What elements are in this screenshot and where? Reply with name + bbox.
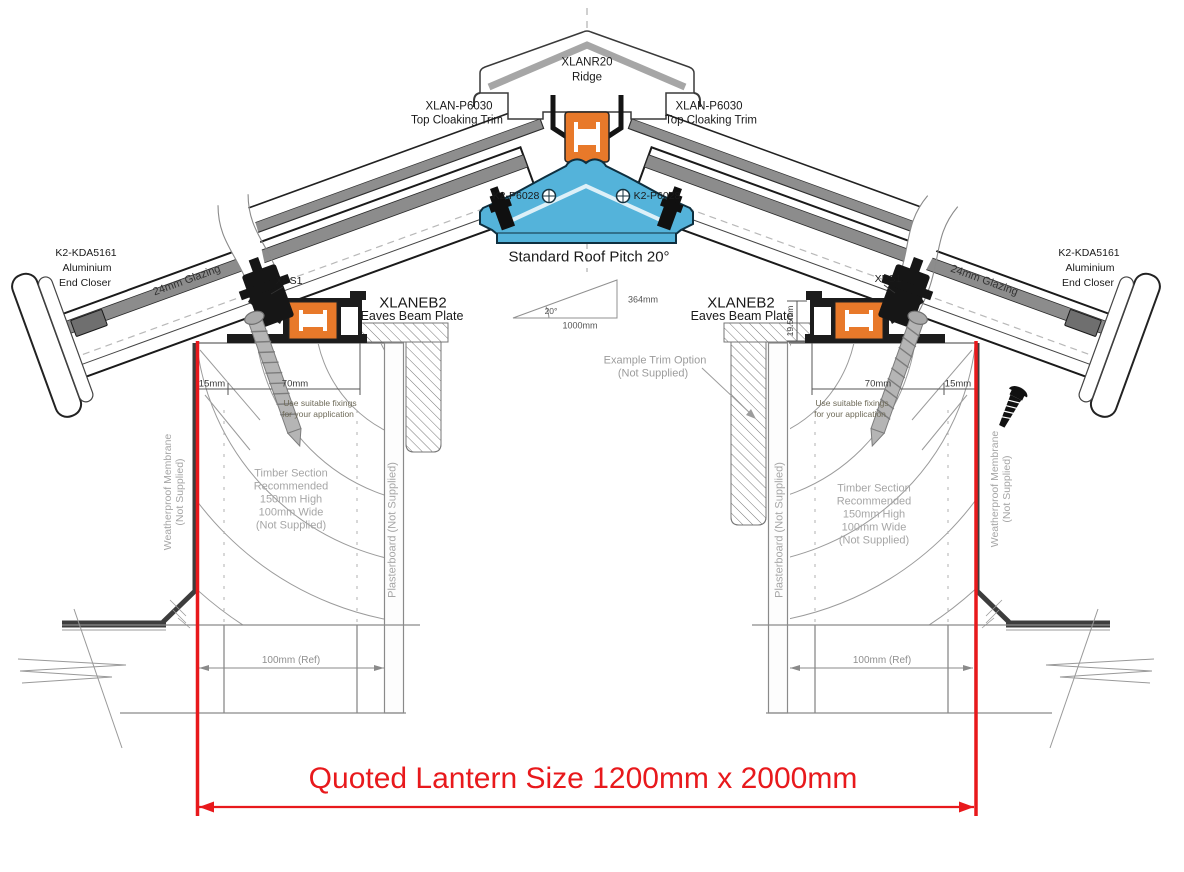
timber-note-right-1: Timber Section xyxy=(837,484,911,495)
fixings-note-left-1: Use suitable fixings xyxy=(283,399,356,408)
gasket-left-label: XPS1 xyxy=(276,276,303,287)
timber-note-left-1: Timber Section xyxy=(254,469,328,480)
membrane-right-label-1: Weatherproof Membrane xyxy=(990,431,1001,548)
dim-beam-height: 19.5mm xyxy=(786,306,795,337)
end-closer-left-code: K2-KDA5161 xyxy=(55,248,116,259)
ridge-part-code: XLANR20 xyxy=(561,57,612,69)
roof-pitch-label: Standard Roof Pitch 20° xyxy=(508,250,669,265)
timber-note-right-4: 100mm Wide xyxy=(842,523,907,534)
pitch-triangle xyxy=(513,280,617,318)
pitch-angle-label: 20° xyxy=(545,307,558,316)
break-lines xyxy=(18,609,1154,748)
ridge-part-label: Ridge xyxy=(572,72,602,84)
ridge-bolt-right xyxy=(617,190,630,203)
end-closer-left-l2: Aluminium xyxy=(62,263,111,274)
dim-70-left: 70mm xyxy=(282,379,308,389)
cloaking-trim-right-code: XLAN-P6030 xyxy=(675,101,742,113)
end-closer-right-code: K2-KDA5161 xyxy=(1058,248,1119,259)
ridge-bolt-left xyxy=(543,190,556,203)
leader-lines xyxy=(271,285,895,419)
end-closer-left-l3: End Closer xyxy=(59,278,111,289)
lantern-section-drawing: XLANR20 Ridge XLAN-P6030 Top Cloaking Tr… xyxy=(0,0,1184,872)
dim-70-right: 70mm xyxy=(865,379,891,389)
timber-note-left-2: Recommended xyxy=(254,482,329,493)
ridge-thermal-break xyxy=(565,112,609,162)
ridge-bolt-left-label: K2-P6028 xyxy=(493,191,540,202)
timber-note-right-5: (Not Supplied) xyxy=(839,536,909,547)
timber-note-left-3: 150mm High xyxy=(260,495,322,506)
timber-note-left-5: (Not Supplied) xyxy=(256,521,326,532)
plasterboard-right-label: Plasterboard (Not Supplied) xyxy=(775,462,786,598)
fixings-note-right-1: Use suitable fixings xyxy=(815,399,888,408)
eaves-beam-left-label: Eaves Beam Plate xyxy=(361,310,464,323)
cloaking-trim-right-label: Top Cloaking Trim xyxy=(665,115,757,127)
timber-note-left-4: 100mm Wide xyxy=(259,508,324,519)
dim-ref-right: 100mm (Ref) xyxy=(853,656,911,666)
membrane-left-label-1: Weatherproof Membrane xyxy=(163,434,174,551)
timber-note-right-2: Recommended xyxy=(837,497,912,508)
drawing-canvas xyxy=(0,0,1184,872)
membrane-left-label-2: (Not Supplied) xyxy=(175,458,186,525)
timber-note-right-3: 150mm High xyxy=(843,510,905,521)
screw-icon xyxy=(993,383,1030,430)
trim-option-label-2: (Not Supplied) xyxy=(618,369,688,380)
eaves-beam-right-label: Eaves Beam Plate xyxy=(691,310,794,323)
dim-15-right: 15mm xyxy=(945,379,971,389)
membrane-right-label-2: (Not Supplied) xyxy=(1002,455,1013,522)
gasket-right-label: XPS1 xyxy=(875,274,902,285)
structure-lines xyxy=(62,625,1110,713)
trim-option-label-1: Example Trim Option xyxy=(604,356,707,367)
fixings-note-right-2: for your application xyxy=(814,410,886,419)
cloaking-trim-left-code: XLAN-P6030 xyxy=(425,101,492,113)
end-closer-right-l3: End Closer xyxy=(1062,278,1114,289)
fixings-note-left-2: for your application xyxy=(282,410,354,419)
cloaking-trim-left-label: Top Cloaking Trim xyxy=(411,115,503,127)
dim-15-left: 15mm xyxy=(199,379,225,389)
dim-ref-left: 100mm (Ref) xyxy=(262,656,320,666)
pitch-rise-label: 364mm xyxy=(628,296,658,305)
quoted-size-label: Quoted Lantern Size 1200mm x 2000mm xyxy=(309,764,858,794)
end-closer-right-l2: Aluminium xyxy=(1065,263,1114,274)
plasterboard-left-label: Plasterboard (Not Supplied) xyxy=(388,462,399,598)
pitch-run-label: 1000mm xyxy=(562,322,597,331)
ridge-bolt-right-label: K2-P6028 xyxy=(634,191,681,202)
ref-dashed-lines xyxy=(224,410,948,625)
